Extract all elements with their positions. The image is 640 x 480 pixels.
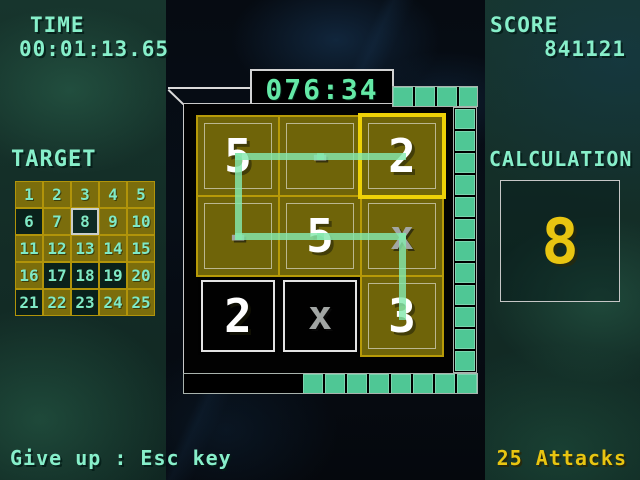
- tile-glyph: x: [308, 293, 332, 339]
- target-cell-21: 21: [15, 289, 43, 316]
- target-cell-13: 13: [71, 235, 99, 262]
- time-track-segment: [455, 197, 475, 217]
- time-track-segment: [347, 374, 367, 394]
- path-segment: [235, 153, 324, 160]
- target-label: TARGET: [11, 147, 96, 172]
- target-cell-14: 14: [99, 235, 127, 262]
- tile-glyph: 2: [224, 289, 252, 343]
- calculation-box: 8: [500, 180, 620, 302]
- target-cell-17: 17: [43, 262, 71, 289]
- calculation-value: 8: [541, 205, 578, 278]
- target-cell-15: 15: [127, 235, 155, 262]
- target-cell-8: 8: [71, 208, 99, 235]
- time-track-segment: [455, 263, 475, 283]
- target-cell-4: 4: [99, 181, 127, 208]
- time-track-bottom: [183, 373, 478, 394]
- time-track-segment: [455, 329, 475, 349]
- time-track-segment: [415, 87, 435, 107]
- time-track-segment: [391, 374, 411, 394]
- board-cell-r2-c1[interactable]: x: [280, 277, 360, 355]
- target-cell-23: 23: [71, 289, 99, 316]
- board-cell-r2-c0[interactable]: 2: [198, 277, 278, 355]
- target-cell-6: 6: [15, 208, 43, 235]
- score-label: SCORE: [490, 13, 558, 37]
- target-cell-11: 11: [15, 235, 43, 262]
- time-track-segment: [413, 374, 433, 394]
- target-cell-10: 10: [127, 208, 155, 235]
- time-label: TIME: [30, 13, 85, 37]
- path-segment: [235, 233, 324, 240]
- time-track-segment: [455, 175, 475, 195]
- time-track-segment: [437, 87, 457, 107]
- round-timer-value: 076:34: [265, 73, 378, 106]
- time-track-segment: [455, 351, 475, 371]
- target-cell-12: 12: [43, 235, 71, 262]
- game-screen: TIME 00:01:13.65 SCORE 841121 TARGET 123…: [0, 0, 640, 480]
- target-cell-20: 20: [127, 262, 155, 289]
- target-cell-3: 3: [71, 181, 99, 208]
- time-track-segment: [455, 241, 475, 261]
- time-track-segment: [455, 109, 475, 129]
- path-segment: [235, 153, 242, 240]
- target-cell-2: 2: [43, 181, 71, 208]
- time-track-segment: [455, 285, 475, 305]
- path-segment: [399, 233, 406, 320]
- path-segment: [317, 153, 406, 160]
- target-cell-24: 24: [99, 289, 127, 316]
- target-cell-19: 19: [99, 262, 127, 289]
- time-track-segment: [435, 374, 455, 394]
- time-value: 00:01:13.65: [19, 37, 169, 61]
- target-grid: 1234567891011121314151617181920212223242…: [15, 181, 155, 316]
- target-cell-18: 18: [71, 262, 99, 289]
- target-cell-5: 5: [127, 181, 155, 208]
- time-track-segment: [369, 374, 389, 394]
- time-track-segment: [455, 219, 475, 239]
- time-track-top: [392, 86, 478, 107]
- time-track-right: [453, 107, 477, 373]
- target-cell-22: 22: [43, 289, 71, 316]
- time-track-segment: [455, 153, 475, 173]
- target-cell-9: 9: [99, 208, 127, 235]
- time-track-segment: [393, 87, 413, 107]
- attacks-counter: 25 Attacks: [497, 446, 627, 470]
- target-cell-25: 25: [127, 289, 155, 316]
- give-up-hint: Give up : Esc key: [10, 446, 232, 470]
- calculation-label: CALCULATION: [489, 147, 632, 171]
- time-track-segment: [303, 374, 323, 394]
- time-track-segment: [459, 87, 478, 107]
- target-cell-7: 7: [43, 208, 71, 235]
- time-track-segment: [455, 131, 475, 151]
- path-segment: [317, 233, 406, 240]
- panel-frame-line: [168, 87, 252, 89]
- target-cell-1: 1: [15, 181, 43, 208]
- target-cell-16: 16: [15, 262, 43, 289]
- time-track-segment: [455, 307, 475, 327]
- time-track-segment: [457, 374, 477, 394]
- score-value: 841121: [544, 37, 626, 61]
- time-track-segment: [325, 374, 345, 394]
